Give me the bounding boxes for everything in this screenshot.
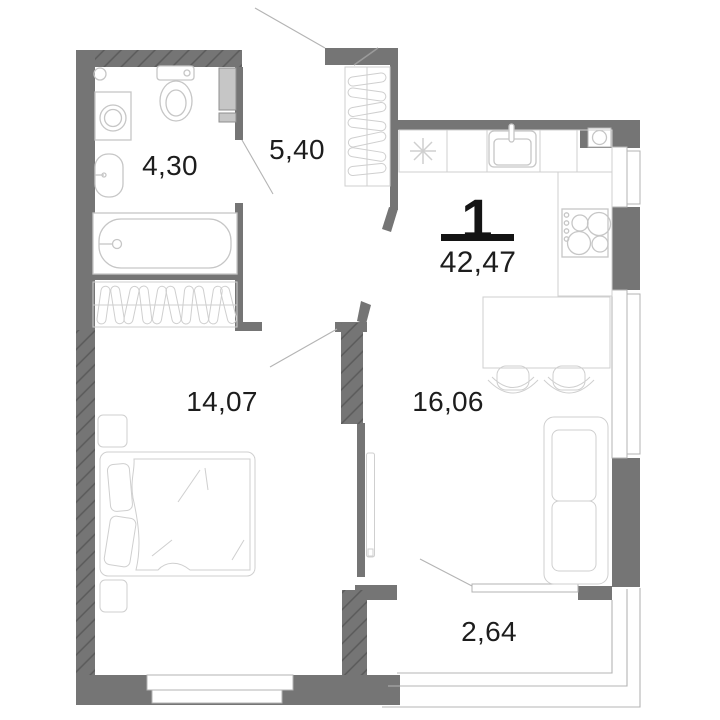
wall-left-upper: [76, 50, 95, 330]
dining-table-icon: [483, 297, 610, 368]
wall-bedroom-stub: [235, 322, 262, 331]
door-leaf-icon: [270, 329, 337, 367]
bedroom-area-label: 14,07: [186, 386, 258, 417]
window-icon: [612, 147, 640, 207]
spotlight-icon: [94, 68, 106, 80]
column-lower: [342, 590, 367, 677]
door-lines: [242, 8, 578, 592]
wall-bedroom-living-divider: [357, 423, 365, 577]
kitchen-living-area-label: 16,06: [412, 386, 484, 417]
wall-hallway-right: [390, 65, 398, 210]
window-icon: [147, 675, 293, 703]
floor-plan-svg: 4,30 5,40 14,07 16,06 2,64 1 42,47: [0, 0, 720, 720]
balcony-glazing-icon: [382, 588, 640, 707]
bedroom-furniture: [98, 415, 255, 612]
stove-icon: [562, 209, 611, 257]
floor-plan: 4,30 5,40 14,07 16,06 2,64 1 42,47: [0, 0, 720, 720]
total-area-label: 42,47: [440, 246, 517, 279]
wall-hallway-kink: [382, 207, 398, 232]
summary-divider-bar: [441, 234, 514, 241]
nightstand-icon: [98, 415, 127, 447]
apartment-summary: 1 42,47: [440, 187, 517, 279]
bathtub-icon: [93, 213, 237, 274]
balcony-door-threshold: [472, 584, 578, 592]
tv-icon: [367, 453, 375, 557]
window-icon: [612, 290, 640, 458]
wall-right-lower: [612, 458, 640, 587]
bathroom-area-label: 4,30: [142, 150, 198, 181]
wall-bathroom-top: [85, 50, 242, 67]
kitchen-sink-icon: [489, 124, 536, 167]
door-leaf-icon: [420, 559, 472, 586]
stool-icon: [488, 366, 538, 393]
wardrobe-icon: [345, 67, 390, 186]
walls: [76, 48, 640, 705]
wall-right-mid: [612, 207, 640, 290]
hallway-area-label: 5,40: [269, 134, 325, 165]
washing-machine-icon: [95, 92, 131, 140]
stool-icon: [544, 366, 594, 393]
duct-shaft-icon: [219, 68, 236, 122]
wall-angle-stub: [357, 301, 371, 324]
bed-icon: [100, 452, 255, 576]
entrance-leader-line: [255, 8, 325, 48]
kitchen-fixtures: [399, 124, 612, 584]
wall-left-lower: [76, 330, 95, 677]
balcony-area-label: 2,64: [461, 616, 517, 647]
wall-balcony-door-right: [578, 586, 612, 600]
toilet-icon: [157, 66, 194, 121]
washbasin-icon: [95, 154, 123, 197]
sofa-icon: [544, 417, 608, 584]
nightstand-icon: [100, 580, 127, 612]
asterisk-marker-icon: [410, 138, 436, 164]
column-upper: [341, 323, 363, 424]
wardrobe-icon: [93, 282, 237, 327]
wall-entrance: [325, 48, 398, 65]
ventilation-icon: [588, 128, 611, 147]
